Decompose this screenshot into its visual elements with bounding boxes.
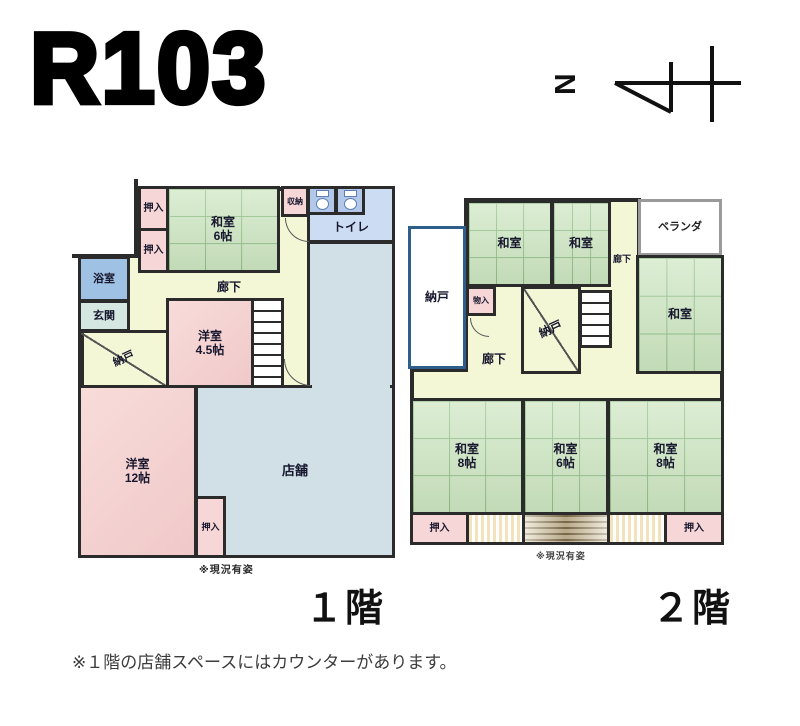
room-washitsu-n: 和室 [551,200,611,287]
stairs-1f [251,298,284,389]
room-label: 和室 [668,308,692,322]
room-label: 和室 [569,237,593,251]
room-label: 和室 [455,443,479,457]
room-washitsu-se: 和室 8帖 [607,398,724,515]
condition-note-1f: ※現況有姿 [199,561,254,576]
room-label: 和室 [553,443,577,457]
room-label: 和室 [653,443,677,457]
footnote: ※１階の店舗スペースにはカウンターがあります。 [72,648,457,673]
room-veranda: ベランダ [638,199,722,256]
room-monoire: 物入 [466,286,496,316]
room-oshiire-mid: 押入 [138,228,169,273]
wood-deck-center [522,512,610,545]
toilet-icon [315,190,330,212]
room-label: 収納 [287,197,303,206]
hallway-label-1f: 廊下 [217,278,241,295]
room-label: ベランダ [658,221,702,234]
room-yoshitsu-12: 洋室 12帖 [78,385,197,558]
room-washitsu-nw: 和室 [466,200,553,287]
hallway-label-2f-lower: 廊下 [482,350,506,367]
room-size: 8帖 [458,457,477,471]
room-oshiire-bottom: 押入 [195,496,226,558]
room-washitsu-s: 和室 6帖 [522,398,609,515]
room-size: 4.5帖 [196,344,225,358]
room-label: 納戸 [425,291,449,305]
stairs-2f [579,290,612,348]
room-washitsu-sw: 和室 8帖 [410,398,524,515]
room-label: 浴室 [93,273,115,286]
room-nando-left: 納戸 [408,226,466,369]
room-bath: 浴室 [78,256,130,302]
room-oshiire-2f-left: 押入 [410,512,469,545]
room-oshiire-2f-right: 押入 [664,512,724,545]
room-nando-1f: 納戸 [78,330,169,389]
engawa-right [607,512,667,545]
room-shuno: 収納 [281,186,309,217]
room-yoshitsu-4-5: 洋室 4.5帖 [166,298,254,389]
engawa-left [466,512,525,545]
hallway-label-2f-upper: 廊下 [613,252,631,265]
room-label: 和室 [211,216,235,230]
floor2-caption: ２階 [652,577,732,632]
room-label: 押入 [144,245,164,257]
compass-n-label: N [555,73,582,95]
floor1-notch [72,179,138,258]
room-label: 物入 [473,296,489,305]
toilet-stall-1 [307,186,337,215]
room-nando-center: 納戸 [521,286,581,374]
room-label: 店舗 [282,464,308,479]
room-size: 6帖 [556,457,575,471]
floorplan-page: R103 N 押入 押入 和室 6帖 収納 トイレ 浴室 玄関 納戸 洋 [0,0,800,726]
room-washitsu-e: 和室 [636,255,724,374]
toilet-icon [343,190,358,212]
room-label: 押入 [201,522,219,532]
condition-note-2f: ※現況有姿 [536,549,586,562]
room-oshiire-top: 押入 [138,186,169,231]
room-label: 洋室 [198,330,222,344]
north-arrow-icon: N [555,35,755,135]
room-size: 12帖 [125,472,150,486]
page-title: R103 [30,12,268,126]
room-label: 洋室 [125,458,149,472]
shop-opening-patch [312,382,390,391]
room-label: 押入 [144,203,164,215]
room-label: 玄関 [93,310,115,323]
room-size: 6帖 [214,230,233,244]
room-label: 押入 [684,523,704,535]
room-label: 押入 [430,523,450,535]
room-washitsu-6: 和室 6帖 [166,186,280,273]
room-shop-upper [307,241,395,390]
toilet-stall-2 [335,186,365,215]
room-size: 8帖 [656,457,675,471]
room-genkan: 玄関 [78,300,130,332]
room-label: 和室 [497,237,521,251]
room-label: トイレ [333,221,369,235]
floor1-caption: １階 [305,577,385,632]
room-label: 納戸 [537,319,565,342]
room-label: 納戸 [111,349,136,370]
